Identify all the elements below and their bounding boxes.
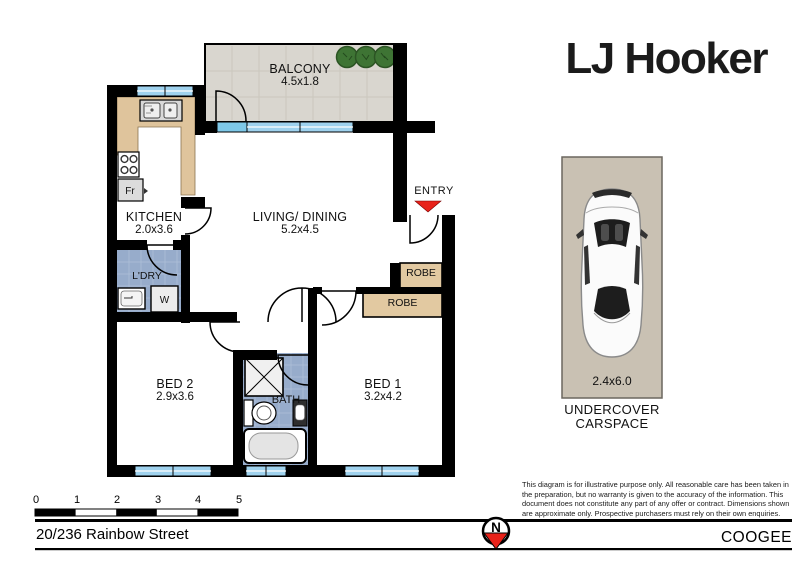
footer-rule-bottom xyxy=(35,548,792,550)
carspace-label-line2: CARSPACE xyxy=(537,417,687,431)
scale-tick-3: 3 xyxy=(152,494,164,506)
kitchen-dims: 2.0x3.6 xyxy=(104,224,204,237)
door-entry xyxy=(410,215,438,243)
carspace-dims: 2.4x6.0 xyxy=(562,374,662,388)
bathtub-icon xyxy=(244,429,306,463)
bath-label: BATH xyxy=(260,394,312,406)
floor-plan-page: Fr W xyxy=(0,0,800,565)
car-top-view-icon xyxy=(576,189,648,357)
balcony-dims: 4.5x1.8 xyxy=(205,76,395,89)
door-hall xyxy=(268,288,336,322)
entry-arrow-icon xyxy=(415,201,441,212)
scale-tick-5: 5 xyxy=(233,494,245,506)
scale-tick-1: 1 xyxy=(71,494,83,506)
lj-hooker-logo: LJ Hooker xyxy=(565,34,767,84)
bed2-name: BED 2 xyxy=(125,377,225,391)
footer-rule-top xyxy=(35,519,792,522)
laundry-label: L'DRY xyxy=(117,271,177,283)
carspace xyxy=(562,157,662,398)
scale-bar xyxy=(35,509,238,516)
suburb-name: COOGEE xyxy=(721,529,792,547)
entry-label: ENTRY xyxy=(405,185,463,197)
kitchen-sink-icon xyxy=(140,100,182,121)
carspace-label-line1: UNDERCOVER xyxy=(537,403,687,417)
living-dims: 5.2x4.5 xyxy=(217,224,383,237)
window-bed1 xyxy=(345,466,419,476)
washer-label: W xyxy=(160,295,170,306)
bed1-label: BED 1 3.2x4.2 xyxy=(333,377,433,404)
scale-tick-2: 2 xyxy=(111,494,123,506)
scale-tick-0: 0 xyxy=(30,494,42,506)
north-arrow-icon: N xyxy=(483,518,509,549)
laundry-tub-icon xyxy=(118,288,145,309)
door-bed2 xyxy=(210,322,240,352)
living-name: LIVING/ DINING xyxy=(217,210,383,224)
kitchen-label: KITCHEN 2.0x3.6 xyxy=(104,210,204,237)
stove-icon xyxy=(118,152,139,177)
washing-machine-icon: W xyxy=(151,286,178,312)
balcony-name: BALCONY xyxy=(205,62,395,76)
scale-tick-4: 4 xyxy=(192,494,204,506)
bed2-label: BED 2 2.9x3.6 xyxy=(125,377,225,404)
living-label: LIVING/ DINING 5.2x4.5 xyxy=(217,210,383,237)
bed2-dims: 2.9x3.6 xyxy=(125,391,225,404)
kitchen-name: KITCHEN xyxy=(104,210,204,224)
fridge-label: Fr xyxy=(125,186,135,197)
property-address: 20/236 Rainbow Street xyxy=(36,526,189,543)
north-letter: N xyxy=(491,520,501,535)
carspace-label: UNDERCOVER CARSPACE xyxy=(537,403,687,431)
window-living xyxy=(247,122,353,132)
balcony-label: BALCONY 4.5x1.8 xyxy=(205,62,395,89)
robe2-label: ROBE xyxy=(363,298,442,310)
bed1-dims: 3.2x4.2 xyxy=(333,391,433,404)
disclaimer-text: This diagram is for illustrative purpose… xyxy=(522,480,798,518)
window-bath xyxy=(246,466,286,476)
bed1-name: BED 1 xyxy=(333,377,433,391)
door-bed1 xyxy=(322,291,356,325)
window-balcony-door xyxy=(217,122,247,132)
fridge-icon: Fr xyxy=(118,179,148,201)
window-bed2 xyxy=(135,466,211,476)
robe1-label: ROBE xyxy=(400,268,442,280)
shower-icon xyxy=(245,358,283,396)
window-kitchen xyxy=(137,86,193,96)
